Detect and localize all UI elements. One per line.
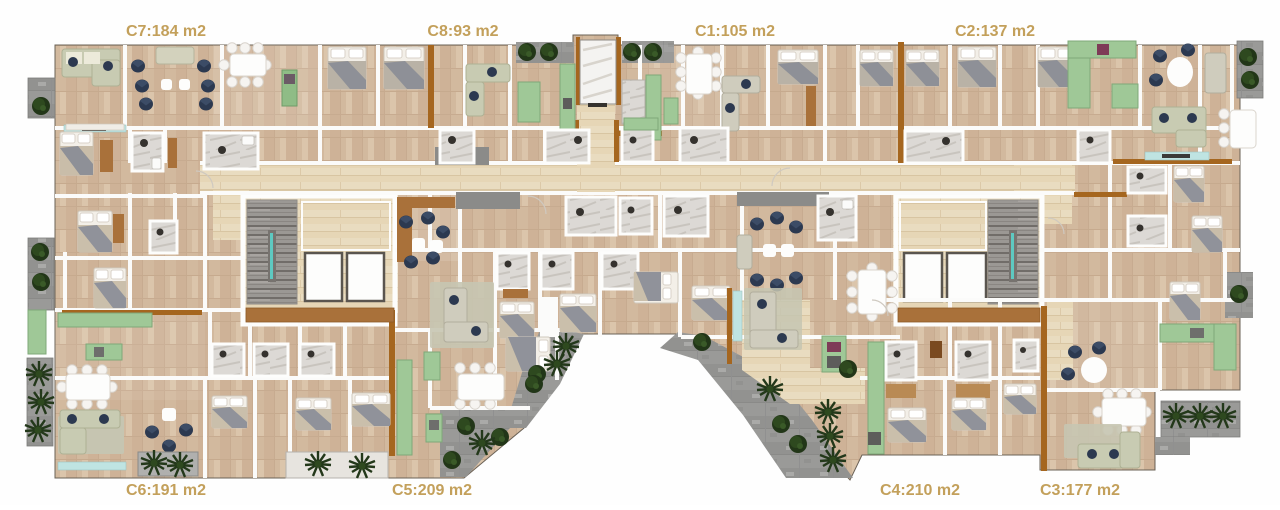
svg-text:C2:137 m2: C2:137 m2 — [955, 23, 1035, 40]
svg-text:C7:184 m2: C7:184 m2 — [126, 23, 206, 40]
svg-text:C1:105 m2: C1:105 m2 — [695, 23, 775, 40]
svg-text:C3:177 m2: C3:177 m2 — [1040, 482, 1120, 499]
svg-text:C4:210 m2: C4:210 m2 — [880, 482, 960, 499]
svg-text:C8:93 m2: C8:93 m2 — [427, 23, 498, 40]
svg-text:C6:191 m2: C6:191 m2 — [126, 482, 206, 499]
svg-text:C5:209 m2: C5:209 m2 — [392, 482, 472, 499]
